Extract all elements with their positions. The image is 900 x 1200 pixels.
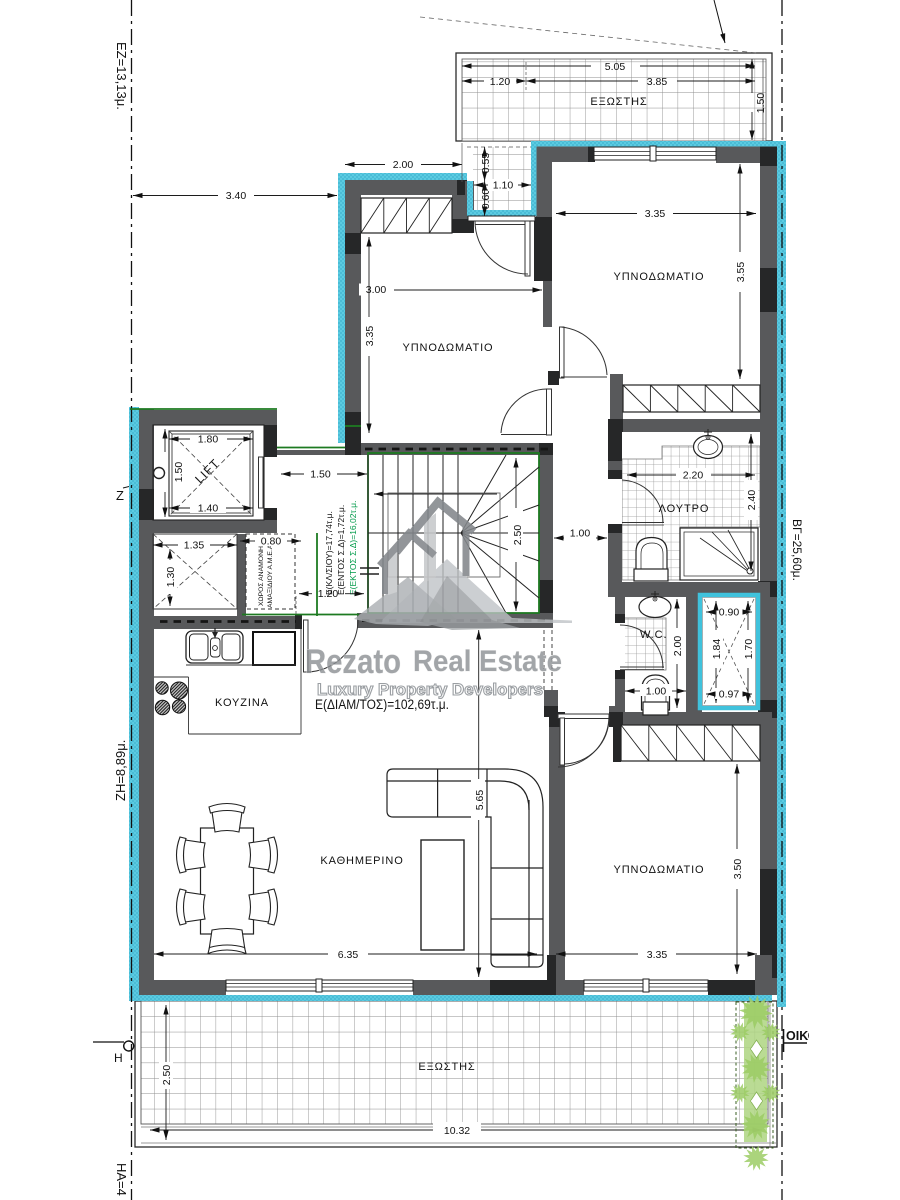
- svg-text:ΛΟΥΤΡΟ: ΛΟΥΤΡΟ: [659, 503, 710, 515]
- svg-text:H: H: [114, 1051, 123, 1065]
- svg-text:3.35: 3.35: [364, 326, 376, 347]
- svg-text:1.40: 1.40: [198, 503, 219, 515]
- svg-text:ΥΠΝΟΔΩΜΑΤΙΟ: ΥΠΝΟΔΩΜΑΤΙΟ: [613, 271, 704, 283]
- svg-text:3.35: 3.35: [645, 208, 666, 220]
- svg-text:ΚΑΘΗΜΕΡΙΝΟ: ΚΑΘΗΜΕΡΙΝΟ: [320, 855, 403, 867]
- svg-text:0.60: 0.60: [480, 189, 492, 210]
- svg-text:1.20: 1.20: [318, 588, 339, 600]
- svg-text:Ε(ΚΛ/ΣΙΟΥ)=17,74τ.μ.: Ε(ΚΛ/ΣΙΟΥ)=17,74τ.μ.: [324, 511, 334, 595]
- svg-text:2.00: 2.00: [672, 636, 684, 657]
- svg-text:ΖΗ=8,89μ.: ΖΗ=8,89μ.: [113, 740, 128, 801]
- svg-text:1.00: 1.00: [646, 686, 667, 698]
- svg-text:0.55: 0.55: [480, 153, 492, 174]
- svg-text:ΧΩΡΟΣ ΑΝΑΜΟΝΗΣ: ΧΩΡΟΣ ΑΝΑΜΟΝΗΣ: [258, 542, 265, 606]
- svg-text:ΕΞΩΣΤΗΣ: ΕΞΩΣΤΗΣ: [590, 96, 647, 108]
- svg-text:ΕΞΩΣΤΗΣ: ΕΞΩΣΤΗΣ: [418, 1061, 475, 1073]
- svg-text:0.90: 0.90: [719, 607, 740, 619]
- svg-text:Ε(ΕΚΤΟΣ Σ.Δ)=16,02τ.μ.: Ε(ΕΚΤΟΣ Σ.Δ)=16,02τ.μ.: [348, 501, 358, 595]
- svg-text:1.70: 1.70: [743, 639, 755, 660]
- svg-text:2.50: 2.50: [161, 1065, 173, 1086]
- svg-text:5.05: 5.05: [605, 61, 626, 73]
- svg-text:0.80: 0.80: [261, 536, 282, 548]
- svg-text:ΗΑ=4: ΗΑ=4: [114, 1163, 129, 1196]
- svg-text:6.35: 6.35: [338, 949, 359, 961]
- svg-text:2.20: 2.20: [683, 470, 704, 482]
- svg-text:1.30: 1.30: [165, 567, 177, 588]
- svg-text:W.C.: W.C.: [640, 629, 667, 641]
- svg-text:2.40: 2.40: [746, 490, 758, 511]
- svg-text:1.20: 1.20: [490, 76, 511, 88]
- svg-text:ΥΠΝΟΔΩΜΑΤΙΟ: ΥΠΝΟΔΩΜΑΤΙΟ: [613, 864, 704, 876]
- svg-text:3.55: 3.55: [735, 262, 747, 283]
- svg-text:1.35: 1.35: [184, 540, 205, 552]
- svg-text:1.50: 1.50: [173, 462, 185, 483]
- svg-text:ΑΜΑΞΙΔΙΟΥ Α.Μ.Ε.Α.: ΑΜΑΞΙΔΙΟΥ Α.Μ.Ε.Α.: [267, 543, 274, 608]
- svg-text:5.65: 5.65: [474, 790, 486, 811]
- svg-text:1.84: 1.84: [711, 639, 723, 660]
- svg-text:ΕΖ=13,13μ.: ΕΖ=13,13μ.: [114, 42, 129, 110]
- svg-text:3.85: 3.85: [647, 76, 668, 88]
- svg-text:Rezato: Rezato: [305, 643, 401, 681]
- svg-text:Ε(ΕΝΤΟΣ Σ.Δ)=1,72τ.μ.: Ε(ΕΝΤΟΣ Σ.Δ)=1,72τ.μ.: [336, 505, 346, 595]
- svg-text:10.32: 10.32: [444, 1125, 470, 1137]
- svg-text:3.35: 3.35: [647, 949, 668, 961]
- svg-text:0.97: 0.97: [719, 689, 740, 701]
- svg-text:1.80: 1.80: [198, 434, 219, 446]
- svg-text:1.10: 1.10: [493, 180, 514, 192]
- svg-text:1.50: 1.50: [755, 93, 767, 114]
- svg-text:ΥΠΝΟΔΩΜΑΤΙΟ: ΥΠΝΟΔΩΜΑΤΙΟ: [402, 342, 493, 354]
- svg-text:Z: Z: [116, 488, 124, 503]
- svg-text:3.40: 3.40: [226, 190, 247, 202]
- svg-text:2.00: 2.00: [393, 159, 414, 171]
- svg-text:1.50: 1.50: [310, 469, 331, 481]
- svg-text:Real Estate: Real Estate: [413, 645, 562, 678]
- svg-text:2.50: 2.50: [512, 525, 524, 546]
- svg-text:ΚΟΥΖΙΝΑ: ΚΟΥΖΙΝΑ: [215, 697, 269, 709]
- svg-text:1.00: 1.00: [570, 528, 591, 540]
- svg-text:Ε(ΔΙΑΜ/ΤΟΣ)=102,69τ.μ.: Ε(ΔΙΑΜ/ΤΟΣ)=102,69τ.μ.: [315, 697, 449, 712]
- svg-text:ΒΓ=25,60μ.: ΒΓ=25,60μ.: [790, 519, 804, 581]
- svg-text:3.50: 3.50: [732, 859, 744, 880]
